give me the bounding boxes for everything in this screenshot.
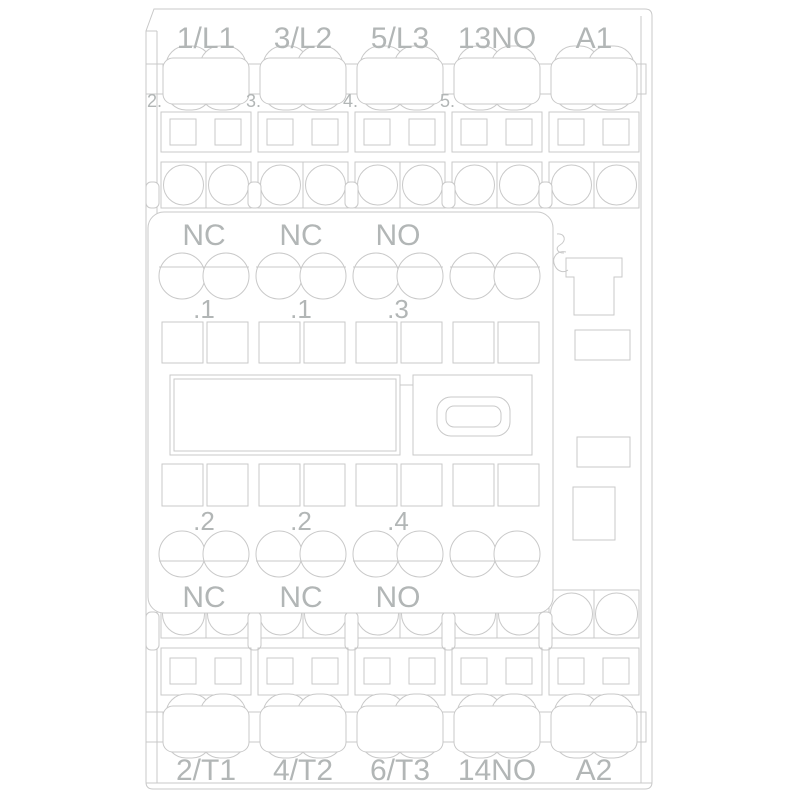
bottom-terminal-section bbox=[146, 590, 646, 758]
terminal-label-2T1: 2/T1 bbox=[176, 754, 236, 787]
terminal-label-5L3: 5/L3 bbox=[371, 22, 429, 55]
aux-number-top-2: .1 bbox=[290, 294, 312, 324]
aux-contact-block: NC NC NO .1 .1 .3 .2 .2 .4 NC NC NO bbox=[148, 212, 553, 614]
terminal-label-6T3: 6/T3 bbox=[370, 754, 430, 787]
terminal-label-4T2: 4/T2 bbox=[273, 754, 333, 787]
terminal-label-14NO: 14NO bbox=[458, 754, 536, 787]
aux-label-bottom-nc2: NC bbox=[279, 581, 322, 614]
terminal-label-3L2: 3/L2 bbox=[274, 22, 332, 55]
terminal-lug-2T1 bbox=[163, 694, 249, 758]
aux-label-bottom-no: NO bbox=[376, 581, 421, 614]
aux-number-bottom-1: .2 bbox=[193, 506, 215, 536]
terminal-label-13NO: 13NO bbox=[458, 22, 536, 55]
side-opening-1 bbox=[575, 330, 630, 360]
terminal-lug-6T3 bbox=[357, 694, 443, 758]
pole-marker: 4. bbox=[343, 91, 358, 111]
terminal-label-A2: A2 bbox=[576, 754, 613, 787]
terminal-label-A1: A1 bbox=[576, 22, 613, 55]
aux-number-bottom-3: .4 bbox=[387, 506, 409, 536]
aux-label-top-nc1: NC bbox=[182, 219, 225, 252]
release-lever-curve bbox=[557, 234, 564, 253]
contactor-drawing-canvas: 2. 3. 4. 5. 1/L1 3/L2 5/L3 13NO A1 2/T1 bbox=[0, 0, 800, 800]
top-terminal-labels: 1/L1 3/L2 5/L3 13NO A1 bbox=[177, 22, 613, 55]
bottom-terminal-labels: 2/T1 4/T2 6/T3 14NO A2 bbox=[176, 754, 612, 787]
terminal-lug-5L3 bbox=[357, 46, 443, 110]
pole-marker: 2. bbox=[147, 91, 162, 111]
accessory-slot-T bbox=[566, 258, 622, 315]
aux-label-bottom-nc1: NC bbox=[182, 581, 225, 614]
side-opening-3 bbox=[573, 487, 615, 540]
terminal-lug-13NO bbox=[454, 46, 540, 110]
terminal-lug-3L2 bbox=[260, 46, 346, 110]
top-terminal-section: 2. 3. 4. 5. bbox=[146, 46, 646, 208]
aux-label-top-nc2: NC bbox=[279, 219, 322, 252]
terminal-lug-A1 bbox=[551, 46, 637, 110]
terminal-lug-14NO bbox=[454, 694, 540, 758]
terminal-lug-A2 bbox=[551, 694, 637, 758]
contactor-line-drawing: 2. 3. 4. 5. 1/L1 3/L2 5/L3 13NO A1 2/T1 bbox=[0, 0, 800, 800]
terminal-lug-1L1 bbox=[163, 46, 249, 110]
terminal-lug-4T2 bbox=[260, 694, 346, 758]
pole-marker: 5. bbox=[440, 91, 455, 111]
aux-number-top-1: .1 bbox=[193, 294, 215, 324]
aux-label-top-no: NO bbox=[376, 219, 421, 252]
pole-marker: 3. bbox=[246, 91, 261, 111]
terminal-label-1L1: 1/L1 bbox=[177, 22, 235, 55]
right-side-details bbox=[554, 234, 630, 540]
side-opening-2 bbox=[577, 437, 630, 467]
aux-number-top-3: .3 bbox=[387, 294, 409, 324]
aux-number-bottom-2: .2 bbox=[290, 506, 312, 536]
